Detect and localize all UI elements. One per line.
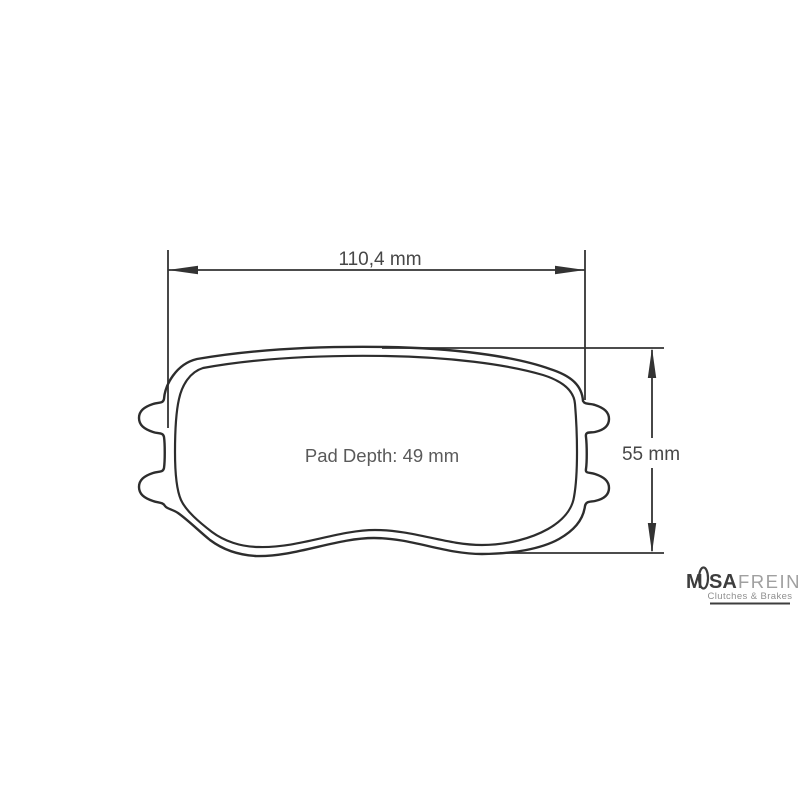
height-arrowhead-top [648, 348, 656, 378]
width-arrowhead-left [168, 266, 198, 274]
width-arrowhead-right [555, 266, 585, 274]
width-dimension-label: 110,4 mm [338, 249, 421, 270]
height-arrowhead-bottom [648, 523, 656, 553]
drawing-canvas: 110,4 mm 55 mm Pad Depth: 49 mm [0, 0, 800, 800]
height-dimension-label: 55 mm [622, 444, 680, 465]
logo-text-frein: FREIN [738, 571, 800, 592]
brake-pad-outline: Pad Depth: 49 mm [139, 347, 609, 556]
logo: M SA FREIN Clutches & Brakes [686, 568, 800, 604]
logo-tagline: Clutches & Brakes [708, 591, 793, 602]
brake-pad-diagram: 110,4 mm 55 mm Pad Depth: 49 mm [0, 0, 800, 800]
logo-text-sa: SA [709, 571, 737, 593]
pad-depth-label: Pad Depth: 49 mm [305, 445, 459, 466]
width-dimension: 110,4 mm [168, 249, 585, 428]
